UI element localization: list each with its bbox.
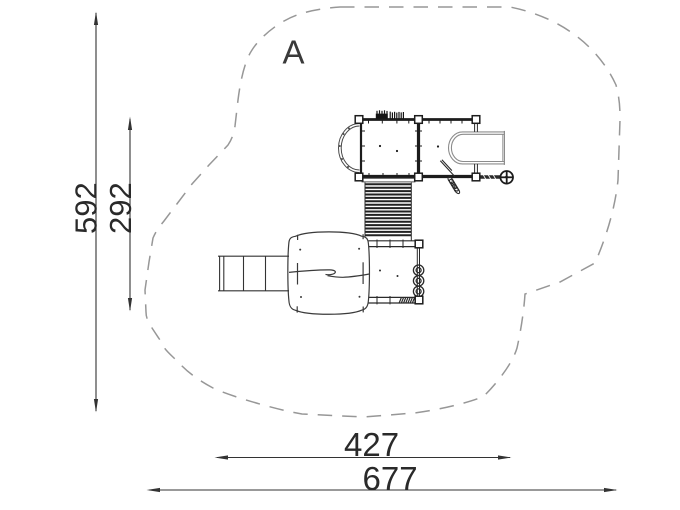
svg-text:592: 592 — [69, 182, 104, 234]
svg-text:677: 677 — [363, 460, 418, 497]
svg-text:292: 292 — [103, 182, 138, 234]
svg-text:427: 427 — [344, 426, 399, 463]
svg-text:A: A — [283, 34, 305, 71]
